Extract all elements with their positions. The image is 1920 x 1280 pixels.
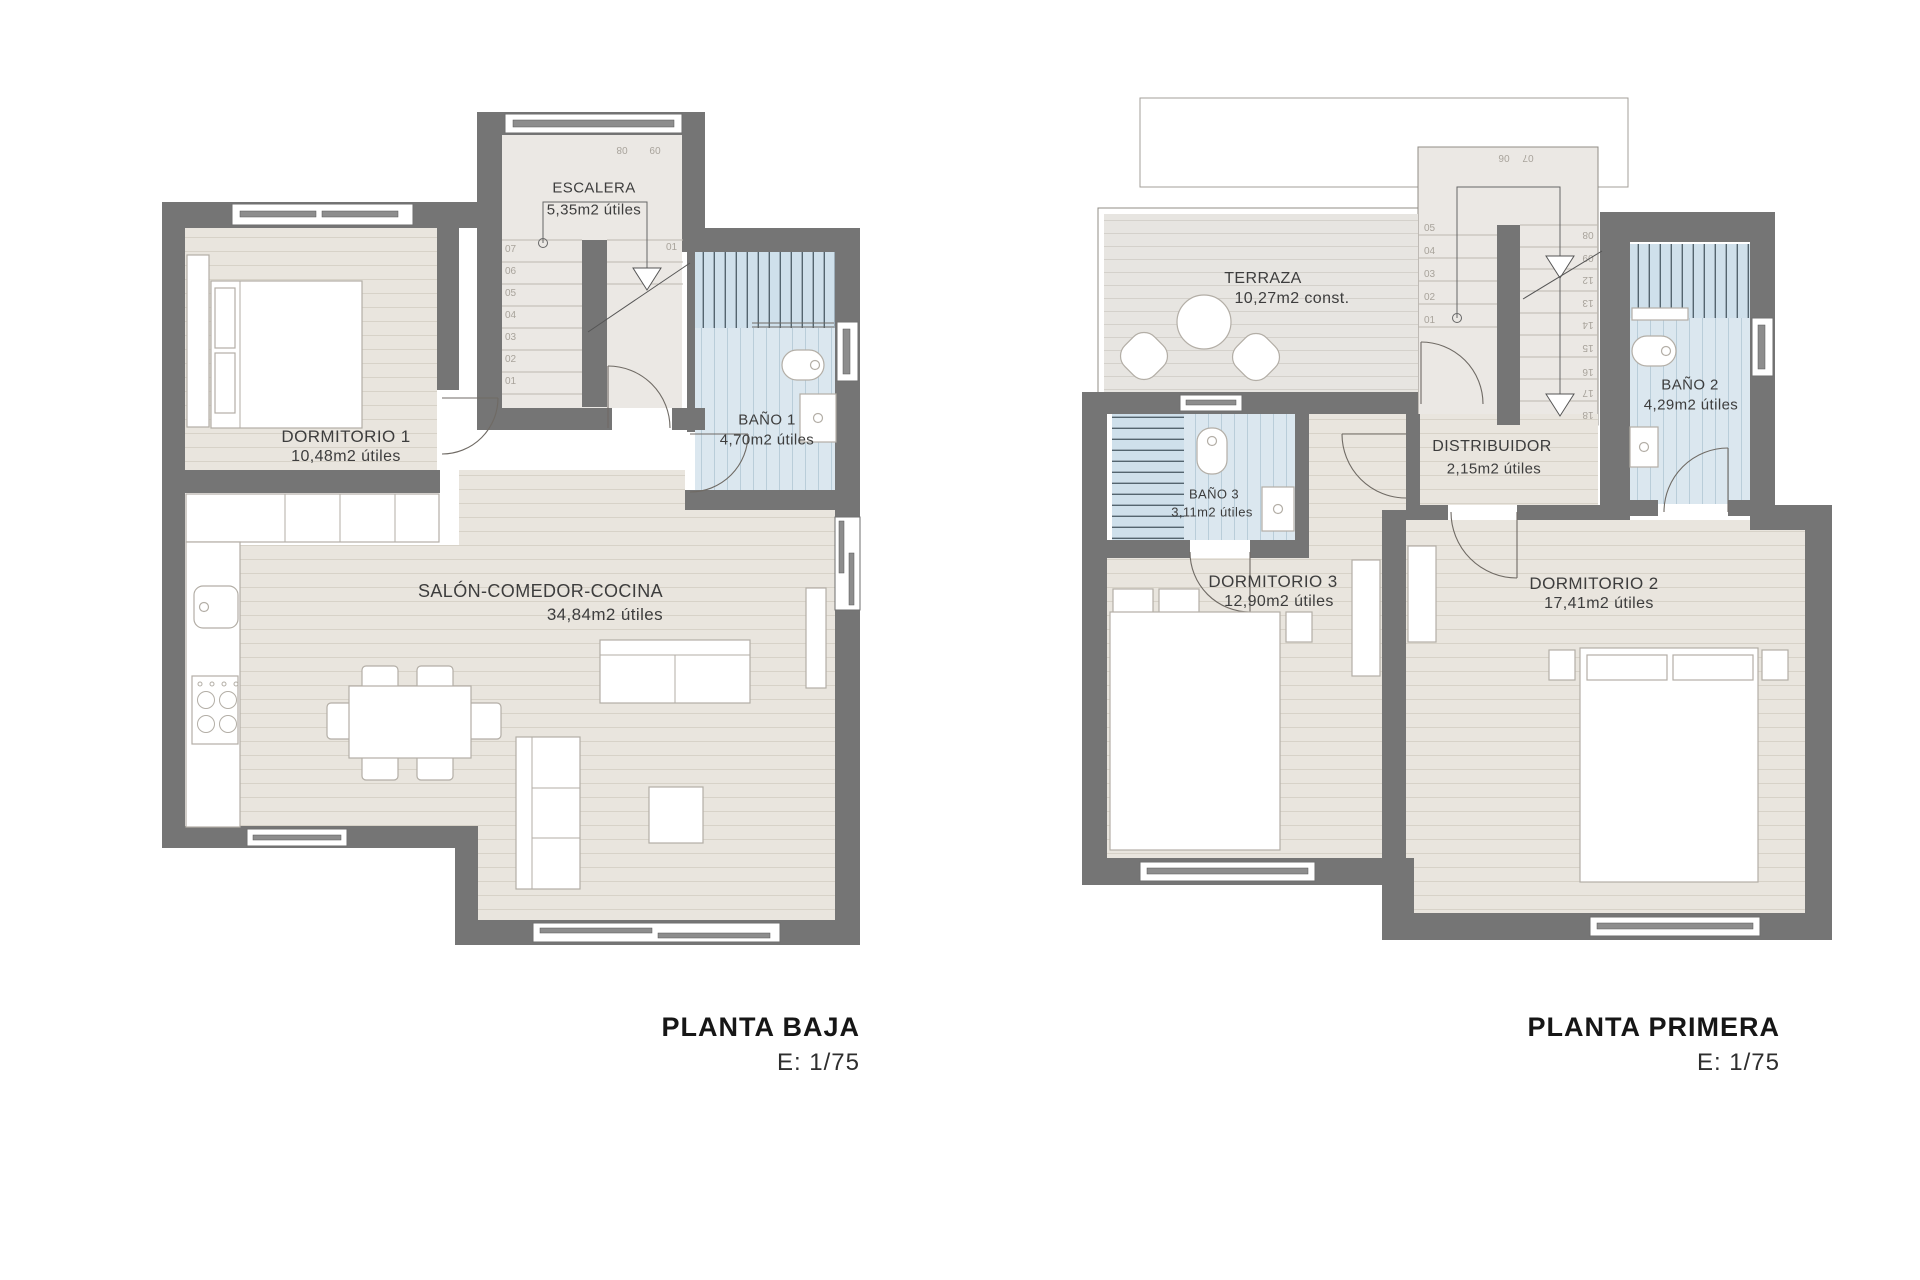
room-label-salon-name: SALÓN-COMEDOR-COCINA <box>418 581 663 602</box>
stair-step-number: 15 <box>1582 342 1594 353</box>
stair-step-number: 08 <box>616 144 628 155</box>
room-label-dormitorio2: DORMITORIO 2 <box>1529 574 1658 594</box>
stair-step-number: 04 <box>1424 246 1436 257</box>
pillow <box>215 353 235 413</box>
room-area-dormitorio2: 17,41m2 útiles <box>1544 595 1654 613</box>
stair-step-number: 12 <box>1582 274 1594 285</box>
floorplan-drawing: 07 06 05 04 03 02 01 08 09 01 <box>0 0 1920 1280</box>
stair-step-number: 01 <box>1424 315 1436 326</box>
nightstand <box>1286 612 1312 642</box>
room-area-dormitorio3: 12,90m2 útiles <box>1224 593 1334 611</box>
sofa <box>516 737 580 889</box>
plan-title-planta-baja: PLANTA BAJA E: 1/75 <box>662 1012 861 1077</box>
shower-tray <box>1632 308 1688 320</box>
stair-step-number: 06 <box>1498 152 1510 163</box>
room-area-escalera: 5,35m2 útiles <box>547 202 641 219</box>
room-label-distribuidor: DISTRIBUIDOR <box>1432 438 1551 456</box>
room-area-terraza: 10,27m2 const. <box>1235 290 1350 308</box>
bed <box>1110 612 1280 850</box>
bed <box>1580 648 1758 882</box>
toilet <box>1197 428 1227 474</box>
room-label-escalera: ESCALERA <box>552 180 635 197</box>
room-label-dormitorio3: DORMITORIO 3 <box>1208 572 1337 592</box>
wardrobe <box>1352 560 1380 676</box>
stair-step-number: 06 <box>505 266 517 277</box>
stair-step-number: 03 <box>505 332 517 343</box>
stair-step-number: 18 <box>1582 409 1594 420</box>
pillow <box>1587 655 1667 680</box>
plan-title-planta-primera: PLANTA PRIMERA E: 1/75 <box>1528 1012 1781 1077</box>
wardrobe <box>187 255 209 427</box>
stair-step-number: 01 <box>666 242 678 253</box>
room-label-dormitorio1: DORMITORIO 1 <box>281 427 410 447</box>
nightstand <box>1549 650 1575 680</box>
room-label-salon: SALÓN-COMEDOR-COCINA 34,84m2 útiles <box>418 581 663 625</box>
room-label-bano2: BAÑO 2 <box>1661 377 1718 394</box>
nightstand <box>1762 650 1788 680</box>
pillow <box>1113 589 1153 613</box>
pillow <box>1673 655 1753 680</box>
plan-title-text: PLANTA PRIMERA <box>1528 1012 1781 1043</box>
stair-step-number: 16 <box>1582 366 1594 377</box>
stair-step-number: 07 <box>505 244 517 255</box>
stair-step-number: 03 <box>1424 269 1436 280</box>
plan-title-text: PLANTA BAJA <box>662 1012 861 1043</box>
stair-step-number: 13 <box>1582 297 1594 308</box>
pillow <box>215 288 235 348</box>
room-area-bano1: 4,70m2 útiles <box>720 432 814 449</box>
kitchen-counter <box>186 494 439 542</box>
stair-step-number: 01 <box>505 376 517 387</box>
stair-step-number: 05 <box>505 288 517 299</box>
stair-step-number: 07 <box>1522 152 1534 163</box>
room-label-terraza: TERRAZA <box>1224 270 1301 288</box>
room-area-dormitorio1: 10,48m2 útiles <box>291 448 401 466</box>
room-area-salon: 34,84m2 útiles <box>418 605 663 625</box>
wardrobe <box>1408 546 1436 642</box>
room-label-bano3: BAÑO 3 <box>1189 487 1239 502</box>
stair-step-number: 09 <box>649 144 661 155</box>
plan-scale-text: E: 1/75 <box>1528 1049 1781 1077</box>
stair-step-number: 02 <box>1424 292 1436 303</box>
stair-step-number: 17 <box>1582 387 1594 398</box>
stair-step-number: 02 <box>505 354 517 365</box>
room-area-distribuidor: 2,15m2 útiles <box>1447 461 1541 478</box>
tv-unit <box>806 588 826 688</box>
room-area-bano3: 3,11m2 útiles <box>1171 505 1253 520</box>
terrace-table <box>1177 295 1231 349</box>
room-area-bano2: 4,29m2 útiles <box>1644 397 1738 414</box>
pillow <box>1159 589 1199 613</box>
stair-step-number: 05 <box>1424 223 1436 234</box>
plan-scale-text: E: 1/75 <box>662 1049 861 1077</box>
dining-table <box>349 686 471 758</box>
stair-step-number: 08 <box>1582 229 1594 240</box>
floorplan-sheet: 07 06 05 04 03 02 01 08 09 01 <box>0 0 1920 1280</box>
coffee-table <box>649 787 703 843</box>
room-label-bano1: BAÑO 1 <box>738 412 795 429</box>
stair-step-number: 14 <box>1582 319 1594 330</box>
stair-step-number: 04 <box>505 310 517 321</box>
